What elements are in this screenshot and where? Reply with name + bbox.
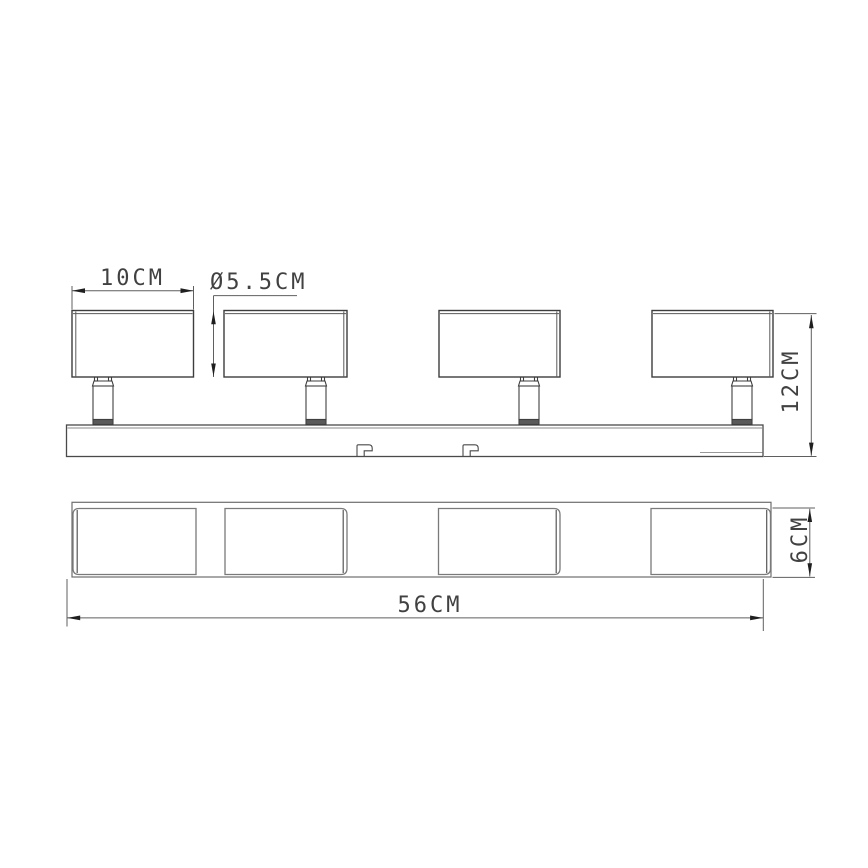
- label-bar-depth: 6CM: [790, 504, 812, 574]
- arrow-down: [809, 443, 814, 456]
- label-total-height: 12CM: [781, 341, 803, 421]
- drawing-geometry: [0, 0, 868, 868]
- arrow-up: [809, 315, 814, 328]
- arrow-right: [750, 616, 763, 621]
- spot-head-bottom-3: [439, 509, 561, 575]
- label-head-width: 10CM: [72, 268, 193, 290]
- spot-head-side-3: [439, 311, 560, 378]
- spot-head-side-4: [652, 311, 773, 378]
- spot-head-bottom-2: [225, 509, 347, 575]
- bar-body: [67, 425, 764, 457]
- swivel-stem-4: [732, 377, 753, 425]
- arrow-left: [67, 616, 80, 621]
- spot-head-side-2: [224, 311, 347, 378]
- swivel-stem-1: [93, 377, 114, 425]
- technical-drawing-spotlight-bar: 10CM Ø5.5CM 12CM 6CM 56CM: [0, 0, 868, 868]
- spot-head-bottom-1: [73, 509, 196, 575]
- bottom-view: [72, 502, 771, 577]
- label-bar-length: 56CM: [370, 595, 490, 617]
- swivel-stem-3: [519, 377, 540, 425]
- spot-head-side-1: [72, 311, 194, 378]
- mounting-bar-side: [67, 425, 764, 457]
- side-view: [67, 311, 774, 457]
- spot-head-bottom-4: [651, 509, 771, 575]
- arrow-up: [211, 311, 216, 324]
- arrow-down: [211, 364, 216, 377]
- swivel-stem-2: [306, 377, 327, 425]
- label-head-diameter: Ø5.5CM: [210, 272, 307, 294]
